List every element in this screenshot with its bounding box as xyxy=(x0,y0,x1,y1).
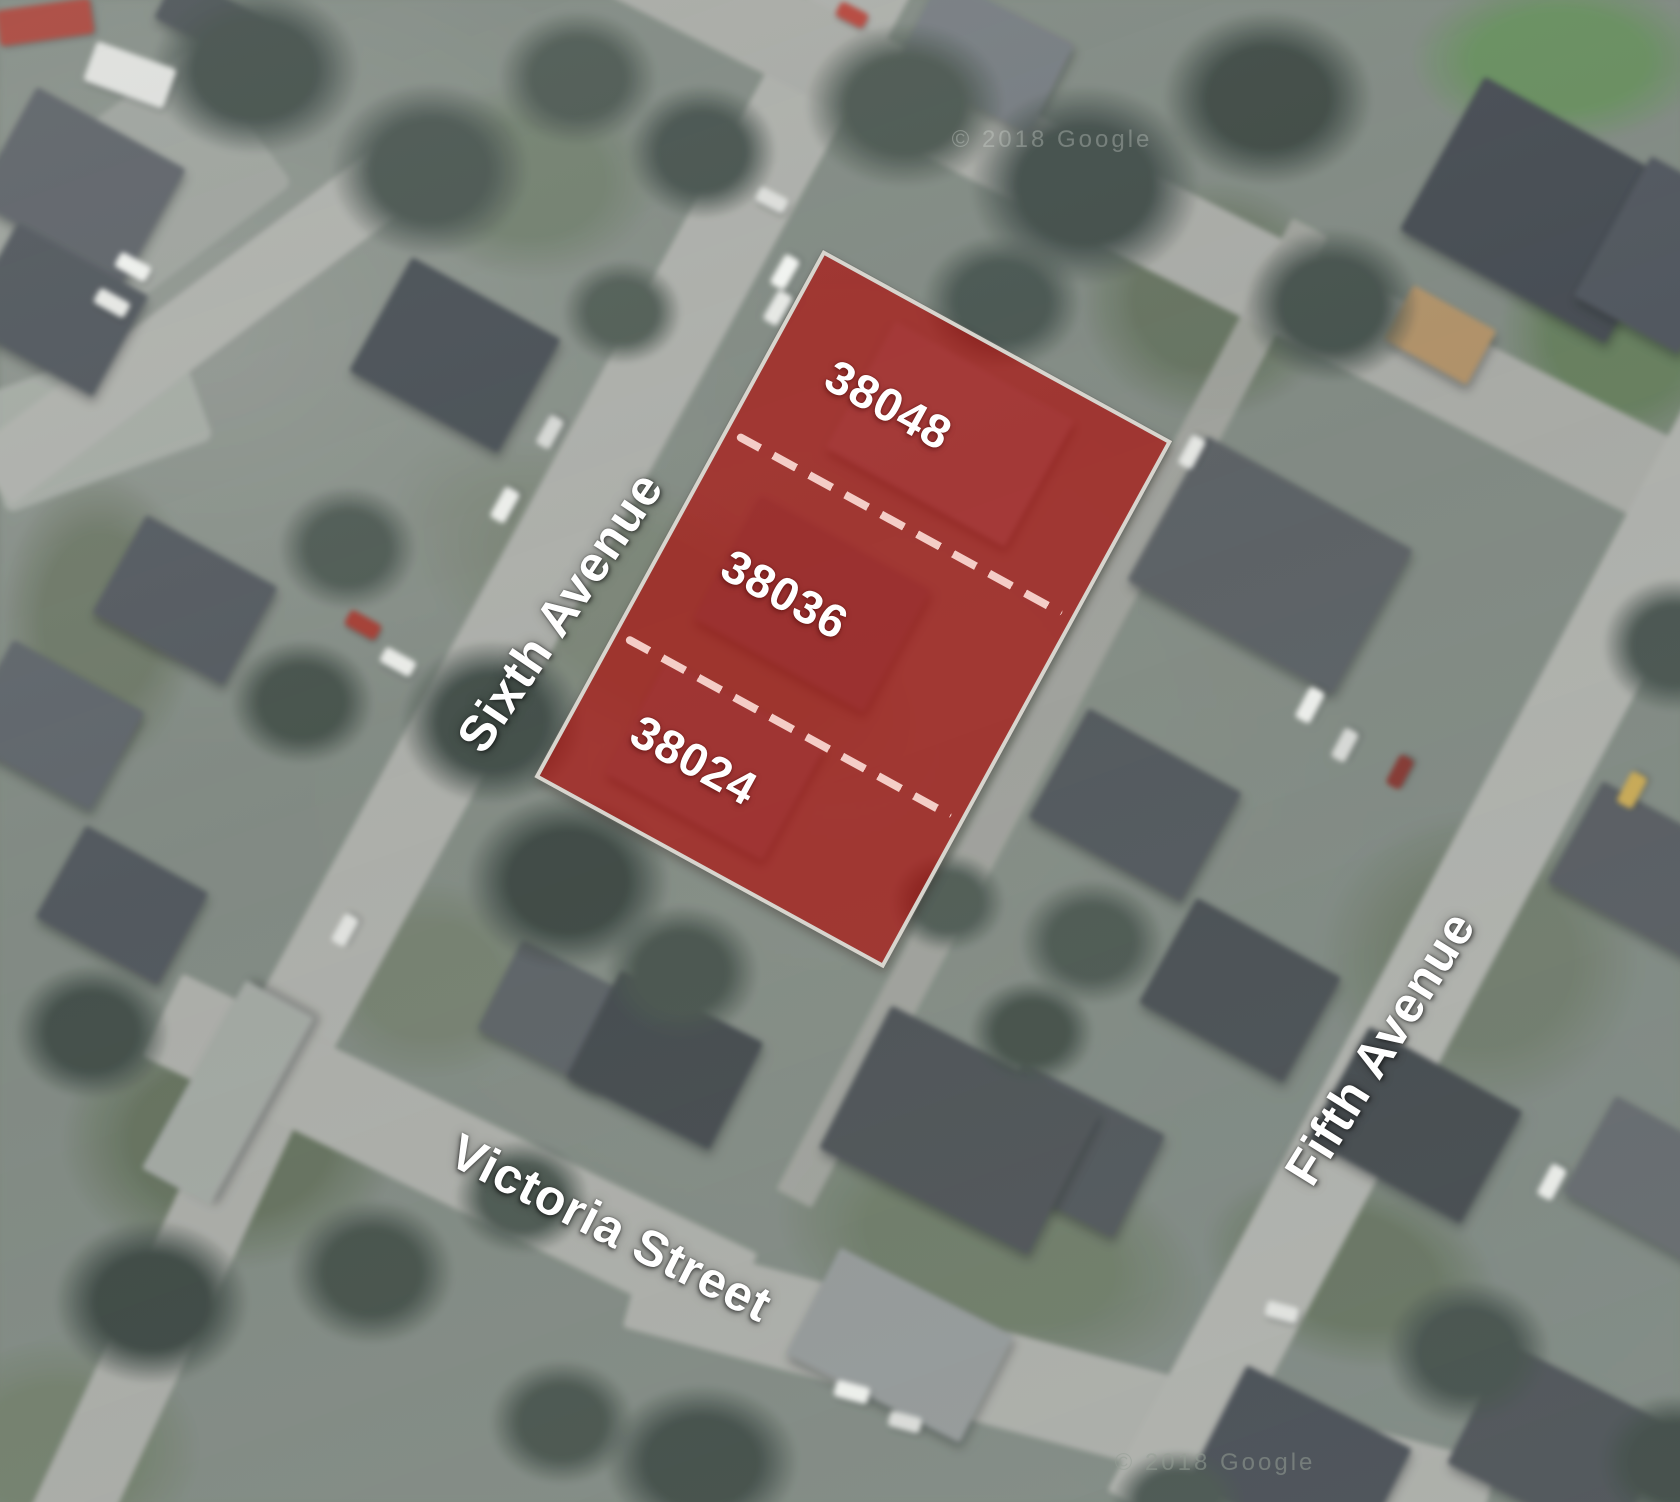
tree-canopy xyxy=(562,260,682,365)
tree-canopy xyxy=(970,980,1095,1085)
house-roof xyxy=(35,825,208,985)
vehicle xyxy=(1536,1163,1567,1202)
tree-canopy xyxy=(150,0,360,155)
tree-canopy xyxy=(1386,1280,1551,1425)
vehicle xyxy=(0,0,95,46)
tree-canopy xyxy=(1245,228,1420,383)
tree-canopy xyxy=(55,1220,250,1385)
tree-canopy xyxy=(1598,1395,1680,1502)
watermark-text: © 2018 Google xyxy=(1115,1449,1316,1477)
satellite-map-image: 38048 38036 38024 Sixth Avenue Fifth Ave… xyxy=(0,0,1680,1502)
watermark-text: © 2018 Google xyxy=(952,126,1153,154)
tree-canopy xyxy=(290,1200,455,1345)
vehicle xyxy=(344,609,383,641)
house-roof xyxy=(1563,1096,1680,1265)
tree-canopy xyxy=(15,965,170,1100)
tree-canopy xyxy=(605,905,760,1040)
tree-canopy xyxy=(278,486,418,611)
tree-canopy xyxy=(1163,11,1373,186)
vehicle xyxy=(769,253,801,291)
house-roof xyxy=(1139,898,1341,1083)
tree-canopy xyxy=(490,1360,635,1485)
tree-canopy xyxy=(1603,578,1680,713)
vehicle xyxy=(1294,686,1325,725)
vehicle xyxy=(1385,754,1415,791)
vehicle xyxy=(1330,727,1360,764)
tree-canopy xyxy=(230,640,375,765)
